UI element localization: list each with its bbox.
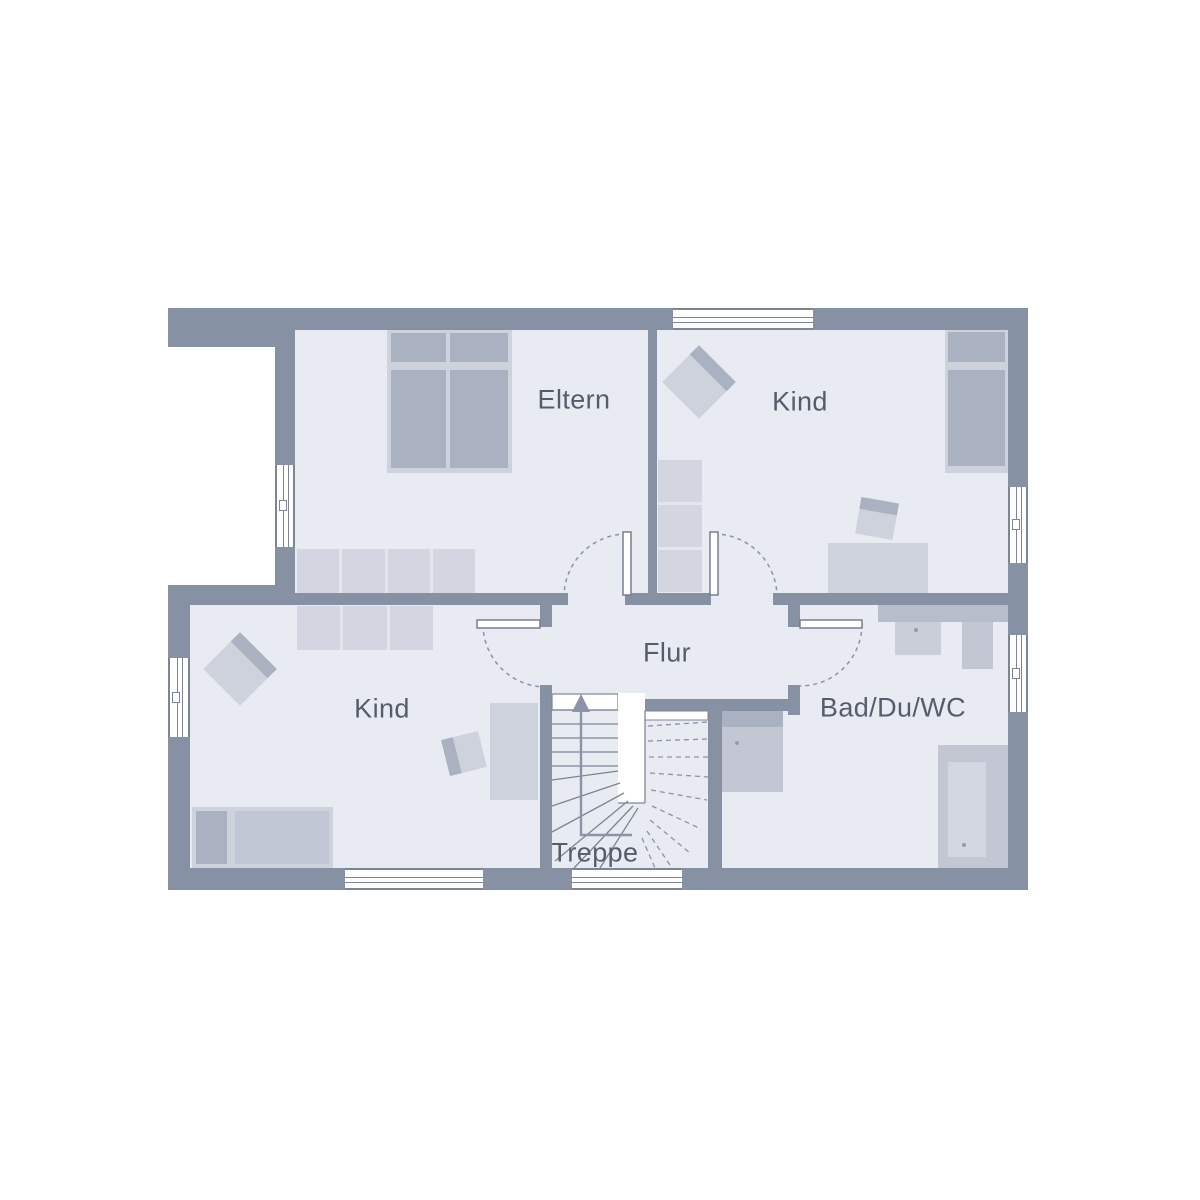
- door-leaf-bad: [800, 620, 862, 628]
- stair-treads-upper-dashed: [642, 722, 708, 868]
- room-label-flur: Flur: [643, 638, 691, 669]
- door-leaf-kind-top: [710, 532, 718, 595]
- room-label-treppe: Treppe: [552, 838, 639, 869]
- door-arc-bad: [800, 624, 862, 686]
- door-arc-kind-top: [714, 534, 777, 597]
- room-label-kind-top: Kind: [772, 387, 828, 418]
- door-arc-eltern: [564, 534, 627, 597]
- door-leaf-eltern: [623, 532, 631, 595]
- plan-linework: [0, 0, 1200, 1200]
- room-label-eltern: Eltern: [538, 385, 611, 416]
- door-arc-kind-bottom: [483, 624, 546, 687]
- stair-upper-tread: [645, 711, 708, 720]
- room-label-kind-bottom: Kind: [354, 694, 410, 725]
- stairwell-void: [618, 693, 645, 803]
- door-leaf-kind-bottom: [477, 620, 540, 628]
- room-label-bad: Bad/Du/WC: [820, 693, 966, 724]
- floor-plan: Eltern Kind Kind Flur Bad/Du/WC Treppe: [0, 0, 1200, 1200]
